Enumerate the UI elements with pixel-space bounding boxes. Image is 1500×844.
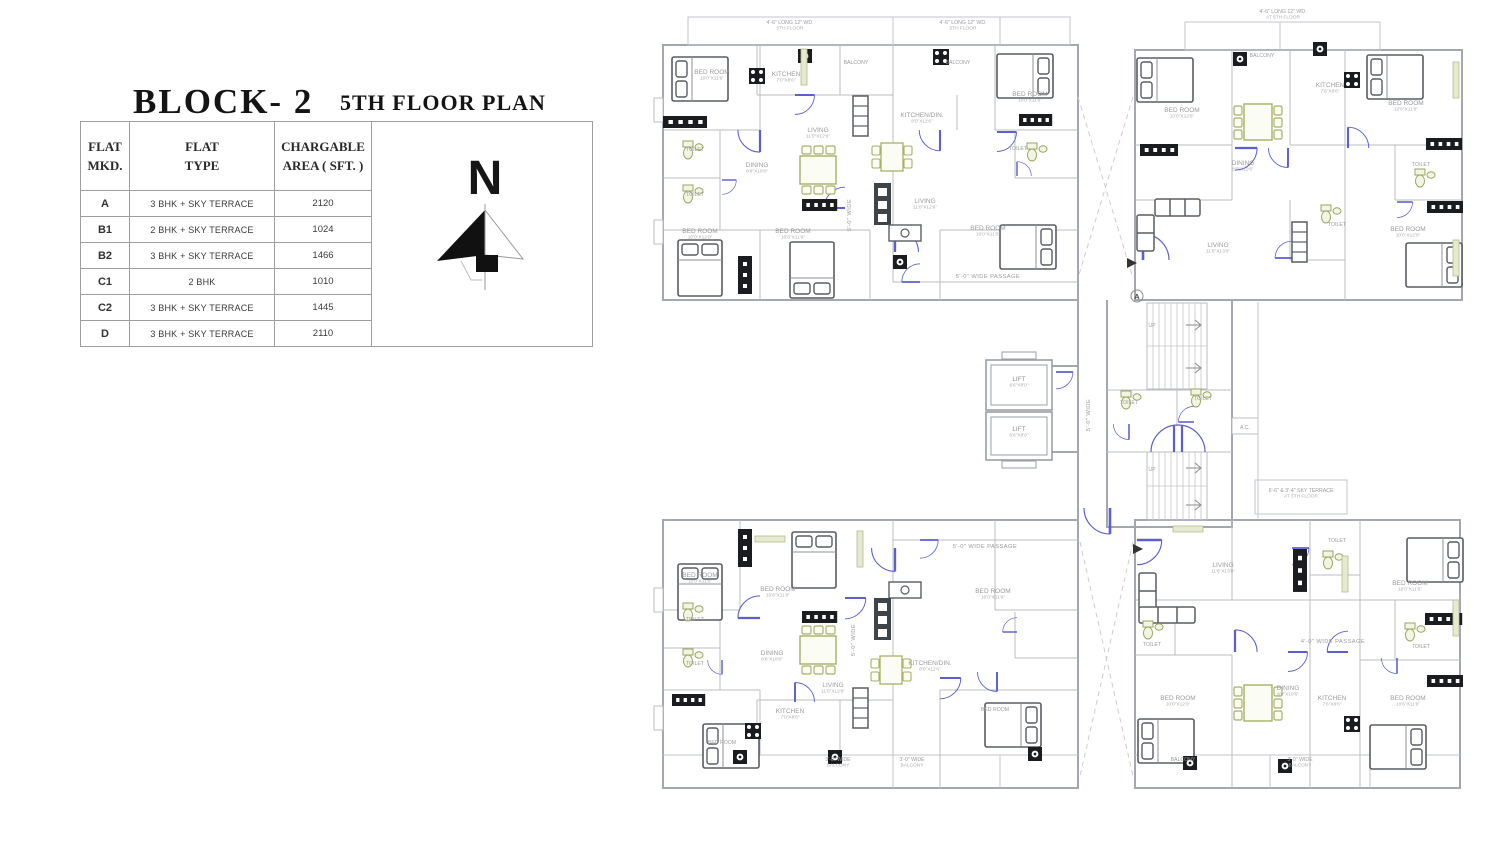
plan-label: KITCHEN7'6"X8'6"	[1316, 82, 1345, 95]
wardrobe-icon	[738, 529, 752, 567]
cell-type: 2 BHK	[130, 269, 275, 295]
door-icon	[738, 130, 760, 152]
window-icon	[1453, 62, 1459, 98]
wardrobe-icon	[802, 611, 837, 623]
plan-label: BED ROOM10'6"X11'6"	[1390, 695, 1425, 708]
plan-label: TOILET	[1328, 538, 1347, 544]
cell-flat: B2	[81, 243, 130, 269]
window-icon	[1173, 526, 1203, 532]
plan-label: KITCHEN/DIN.8'0"X11'6"	[908, 660, 952, 673]
door-icon	[1113, 424, 1129, 440]
bed-icon	[1367, 55, 1423, 99]
wc-icon	[1323, 551, 1343, 569]
door-icon	[795, 683, 815, 703]
plan-label: DINING8'0"X10'6"	[1232, 160, 1255, 173]
floor-plan-title: 5TH FLOOR PLAN	[340, 90, 546, 116]
plan-label: 5'-0" WIDE PASSAGE	[956, 274, 1020, 280]
lift-shafts	[986, 352, 1052, 468]
door-icon	[1017, 162, 1031, 176]
stove-icon	[733, 750, 747, 764]
plan-label: BED ROOM10'6"X11'6"	[1388, 100, 1423, 113]
plan-label: TOILET	[1009, 146, 1028, 152]
cell-area: 2120	[275, 191, 372, 217]
door-icon	[1137, 540, 1162, 565]
wardrobe-icon	[1427, 675, 1463, 687]
plan-label: BALCONY	[1250, 53, 1275, 59]
plan-label: KITCHEN/DIN.8'0"X11'6"	[900, 112, 944, 125]
plan-label: BED ROOM10'0"X11'6"	[1012, 91, 1047, 104]
cell-flat: A	[81, 191, 130, 217]
wardrobe-icon	[1140, 144, 1178, 156]
stove-icon	[1233, 52, 1247, 66]
hob-icon	[749, 68, 765, 84]
dining-table-icon	[800, 146, 836, 194]
double-door-icon	[1151, 425, 1205, 452]
door-icon	[940, 678, 961, 699]
plan-label: 5'-0" WIDE	[851, 624, 857, 656]
dining-table-icon	[800, 626, 836, 674]
window-icon	[801, 49, 807, 85]
duct-voids	[1078, 97, 1133, 776]
dining-table-icon	[1234, 685, 1282, 721]
plan-label: 6'-6" & 3'-4" SKY TERRACEAT 5TH FLOOR	[1269, 488, 1334, 500]
door-icon	[1056, 372, 1073, 389]
plan-label: BED ROOM10'0"X12'0"	[1160, 695, 1195, 708]
plan-label: DINING8'0"X10'6"	[1277, 685, 1300, 698]
north-letter: N	[468, 152, 503, 205]
wardrobe-icon	[1019, 114, 1052, 126]
plan-label: TOILET	[686, 617, 705, 623]
wardrobe-icon	[738, 256, 752, 294]
wc-icon	[1415, 169, 1435, 187]
wc-icon	[1027, 143, 1047, 161]
wardrobe-icon	[663, 116, 707, 128]
plan-label: TOILET	[686, 661, 705, 667]
door-icon	[872, 548, 895, 571]
plan-label: BALCONY	[946, 60, 971, 66]
plan-label: BALCONY	[844, 60, 869, 66]
north-arrow-cell: N	[372, 122, 593, 347]
plan-label: BED ROOM10'0"X11'0"	[975, 588, 1010, 601]
window-icon	[857, 531, 863, 567]
wardrobes	[663, 96, 1463, 728]
door-icon	[795, 95, 815, 115]
wardrobe-icon	[802, 199, 837, 211]
flat-area-table: FLATMKD. FLATTYPE CHARGABLEAREA ( SFT. )…	[80, 121, 593, 347]
hob-icon	[1344, 716, 1360, 732]
plan-label: BED ROOM10'0"X12'6"	[1164, 107, 1199, 120]
plan-label: BED ROOM	[708, 740, 736, 746]
cell-flat: C1	[81, 269, 130, 295]
sofa	[1139, 573, 1195, 623]
plan-label: 4'-0" WIDE PASSAGE	[1301, 639, 1365, 645]
cell-area: 1024	[275, 217, 372, 243]
plan-label: TOILET	[1120, 400, 1139, 406]
door-icon	[722, 180, 736, 194]
plan-label: TOILET	[1412, 644, 1431, 650]
floor-plan: 4'-6" LONG 12" WD.5TH FLOOR4'-6" LONG 12…	[650, 0, 1470, 844]
kitchen-counter	[874, 183, 921, 241]
plan-label: BED ROOM10'0"X12'0"	[682, 228, 717, 241]
plan-label: LIVING11'6"X13'0"	[1211, 562, 1235, 575]
plan-label: 4'-6" LONG 12" WD.5TH FLOOR	[766, 20, 813, 32]
sofa	[1137, 199, 1200, 251]
plan-label: A.C.	[1240, 425, 1250, 431]
dining-table-icon	[1234, 104, 1282, 140]
door-icon	[919, 130, 940, 151]
cell-area: 2110	[275, 321, 372, 347]
bed-icon	[1137, 58, 1193, 102]
wardrobe-icon	[1293, 549, 1307, 592]
compass-icon	[437, 204, 523, 290]
plan-label: BED ROOM10'0"X12'0"	[1390, 226, 1425, 239]
wardrobe-icon	[1426, 138, 1462, 150]
header-flat-mkd: FLATMKD.	[81, 122, 130, 191]
header-flat-type: FLATTYPE	[130, 122, 275, 191]
plan-label: TOILET	[686, 192, 705, 198]
plan-label: BED ROOM	[981, 707, 1009, 713]
shelf-icon	[853, 688, 868, 728]
cell-type: 2 BHK + SKY TERRACE	[130, 217, 275, 243]
bed-icon	[1407, 538, 1463, 582]
hob-icon	[1344, 72, 1360, 88]
bed-icon	[678, 240, 722, 296]
plan-label: BED ROOM10'6"X11'0"	[760, 586, 795, 599]
cell-type: 3 BHK + SKY TERRACE	[130, 295, 275, 321]
partitions	[663, 45, 1462, 788]
plan-label: UP	[1148, 467, 1156, 473]
plan-label: KITCHEN7'0"X8'6"	[776, 708, 805, 721]
floor-plan-sheet: BLOCK- 2 5TH FLOOR PLAN FLATMKD. FLATTYP…	[0, 0, 1500, 844]
stove-icon	[1313, 42, 1327, 56]
wc-icon	[1143, 621, 1163, 639]
plan-label: TOILET	[1328, 222, 1347, 228]
window-icon	[755, 536, 785, 542]
bed-icon	[1370, 725, 1426, 769]
bed-icon	[792, 532, 836, 588]
bed-icon	[1000, 225, 1056, 269]
beds	[672, 54, 1463, 769]
door-icon	[1269, 148, 1289, 168]
plan-label: LIVING11'0"X12'6"	[913, 198, 937, 211]
window-icon	[1453, 600, 1459, 636]
plan-label: LIVING11'6"X13'0"	[1206, 242, 1230, 255]
cell-flat: C2	[81, 295, 130, 321]
plan-label: LIVING11'0"X12'6"	[821, 682, 845, 695]
cell-area: 1010	[275, 269, 372, 295]
north-arrow: N	[373, 122, 591, 341]
doors	[708, 95, 1413, 702]
hob-icon	[745, 723, 761, 739]
plan-label: DINING8'6"X10'0"	[746, 162, 769, 175]
plan-label: BED ROOM10'0"X11'6"	[1392, 580, 1427, 593]
cell-type: 3 BHK + SKY TERRACE	[130, 191, 275, 217]
cell-type: 3 BHK + SKY TERRACE	[130, 321, 275, 347]
cell-type: 3 BHK + SKY TERRACE	[130, 243, 275, 269]
plan-label: TOILET	[1412, 162, 1431, 168]
plan-label: 4'-6" LONG 12" WD.5TH FLOOR	[939, 20, 986, 32]
plan-label: 3'-0" WIDEBALCONY	[825, 757, 851, 769]
plan-label: TOILET	[1194, 396, 1213, 402]
wardrobe-icon	[672, 694, 705, 706]
door-icon	[1288, 652, 1308, 672]
window-icon	[1453, 240, 1459, 276]
cell-area: 1466	[275, 243, 372, 269]
plan-label: 5'-0" WIDE	[1086, 399, 1092, 431]
shelf-icon	[1292, 222, 1307, 262]
shelf-icon	[853, 96, 868, 136]
dining-table-icon	[871, 656, 911, 684]
outer-walls	[663, 45, 1462, 788]
wc-icon	[1321, 205, 1341, 223]
door-icon	[845, 598, 866, 619]
door-icon	[978, 672, 998, 692]
plan-label: KITCHEN7'6"X8'6"	[1318, 695, 1347, 708]
balcony-bands	[663, 17, 1460, 788]
plan-label: LIVING11'0"X12'6"	[806, 127, 830, 140]
cell-flat: B1	[81, 217, 130, 243]
wall-piers	[654, 98, 1258, 730]
kitchen-counter	[874, 582, 921, 640]
plan-label: 5'-0" WIDE PASSAGE	[953, 544, 1017, 550]
plan-label: BALCONY	[1171, 757, 1196, 763]
block-title: BLOCK- 2	[133, 82, 313, 122]
plan-label: 3'-0" WIDEBALCONY	[899, 757, 925, 769]
wardrobe-icon	[1427, 201, 1463, 213]
stove-icon	[893, 255, 907, 269]
door-icon	[1397, 202, 1413, 218]
plan-label: BED ROOM10'6"X11'0"	[775, 228, 810, 241]
plan-label: KITCHEN7'0"X8'6"	[772, 71, 801, 84]
cell-area: 1445	[275, 295, 372, 321]
plan-label: DINING8'6"X10'0"	[761, 650, 784, 663]
plan-label: A	[1134, 292, 1140, 301]
table-header-row: FLATMKD. FLATTYPE CHARGABLEAREA ( SFT. )…	[81, 122, 593, 191]
door-icon	[1235, 630, 1257, 652]
plan-label: 3'-0" WIDEBALCONY	[1287, 757, 1313, 769]
cell-flat: D	[81, 321, 130, 347]
door-icon	[920, 540, 938, 558]
window-icon	[1342, 556, 1348, 592]
door-icon	[738, 596, 760, 618]
plan-label: 4'-6" LONG 12" WD.AT 5TH FLOOR	[1259, 9, 1306, 21]
plan-label: TOILET	[1143, 642, 1162, 648]
plan-label: 5'-0" WIDE	[847, 199, 853, 231]
bed-icon	[790, 242, 834, 298]
header-chargable-area: CHARGABLEAREA ( SFT. )	[275, 122, 372, 191]
plan-label: UP	[1148, 323, 1156, 329]
wc-icon	[1405, 623, 1425, 641]
plan-label: TOILET	[686, 147, 705, 153]
door-icon	[1178, 406, 1194, 422]
dining-table-icon	[872, 143, 912, 171]
door-icon	[1275, 241, 1292, 258]
stove-icon	[1028, 747, 1042, 761]
